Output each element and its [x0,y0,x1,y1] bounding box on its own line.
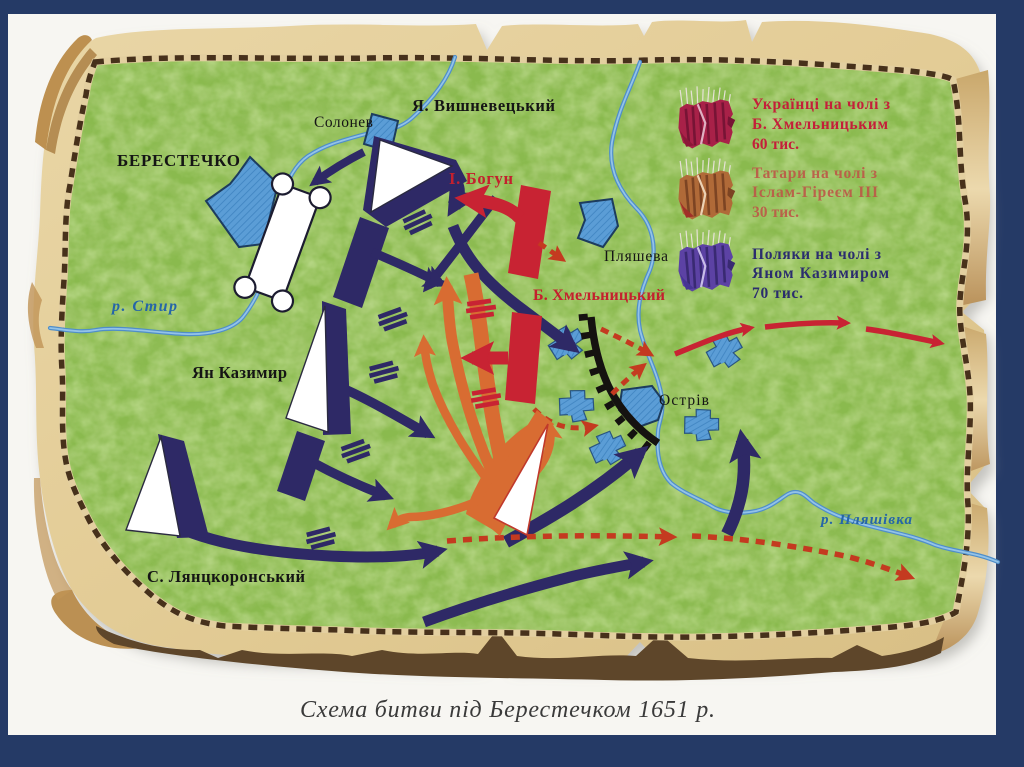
svg-text:Пляшева: Пляшева [604,248,668,265]
svg-text:Я. Вишневецький: Я. Вишневецький [412,96,555,115]
svg-text:Ян Казимир: Ян Казимир [192,363,287,382]
svg-text:30 тис.: 30 тис. [752,204,799,221]
svg-text:С. Лянцкоронський: С. Лянцкоронський [147,567,305,586]
svg-text:р. Пляшівка: р. Пляшівка [819,512,913,528]
svg-text:60 тис.: 60 тис. [752,136,799,153]
svg-text:Поляки на чолі з: Поляки на чолі з [752,246,881,263]
svg-text:Б. Хмельницький: Б. Хмельницький [533,287,665,304]
svg-text:І. Богун: І. Богун [449,169,513,188]
svg-text:Українці на чолі з: Українці на чолі з [752,96,890,113]
svg-text:Татари на чолі з: Татари на чолі з [752,165,877,182]
svg-text:Іслам-Гіреєм ІІІ: Іслам-Гіреєм ІІІ [752,184,878,201]
svg-text:Солонев: Солонев [314,114,373,131]
svg-text:70 тис.: 70 тис. [752,285,803,302]
svg-text:БЕРЕСТЕЧКО: БЕРЕСТЕЧКО [117,151,240,170]
svg-text:Б. Хмельницьким: Б. Хмельницьким [752,116,888,133]
svg-text:Схема битви під Берестечком 16: Схема битви під Берестечком 1651 р. [300,697,715,723]
svg-text:Острів: Острів [659,392,709,409]
